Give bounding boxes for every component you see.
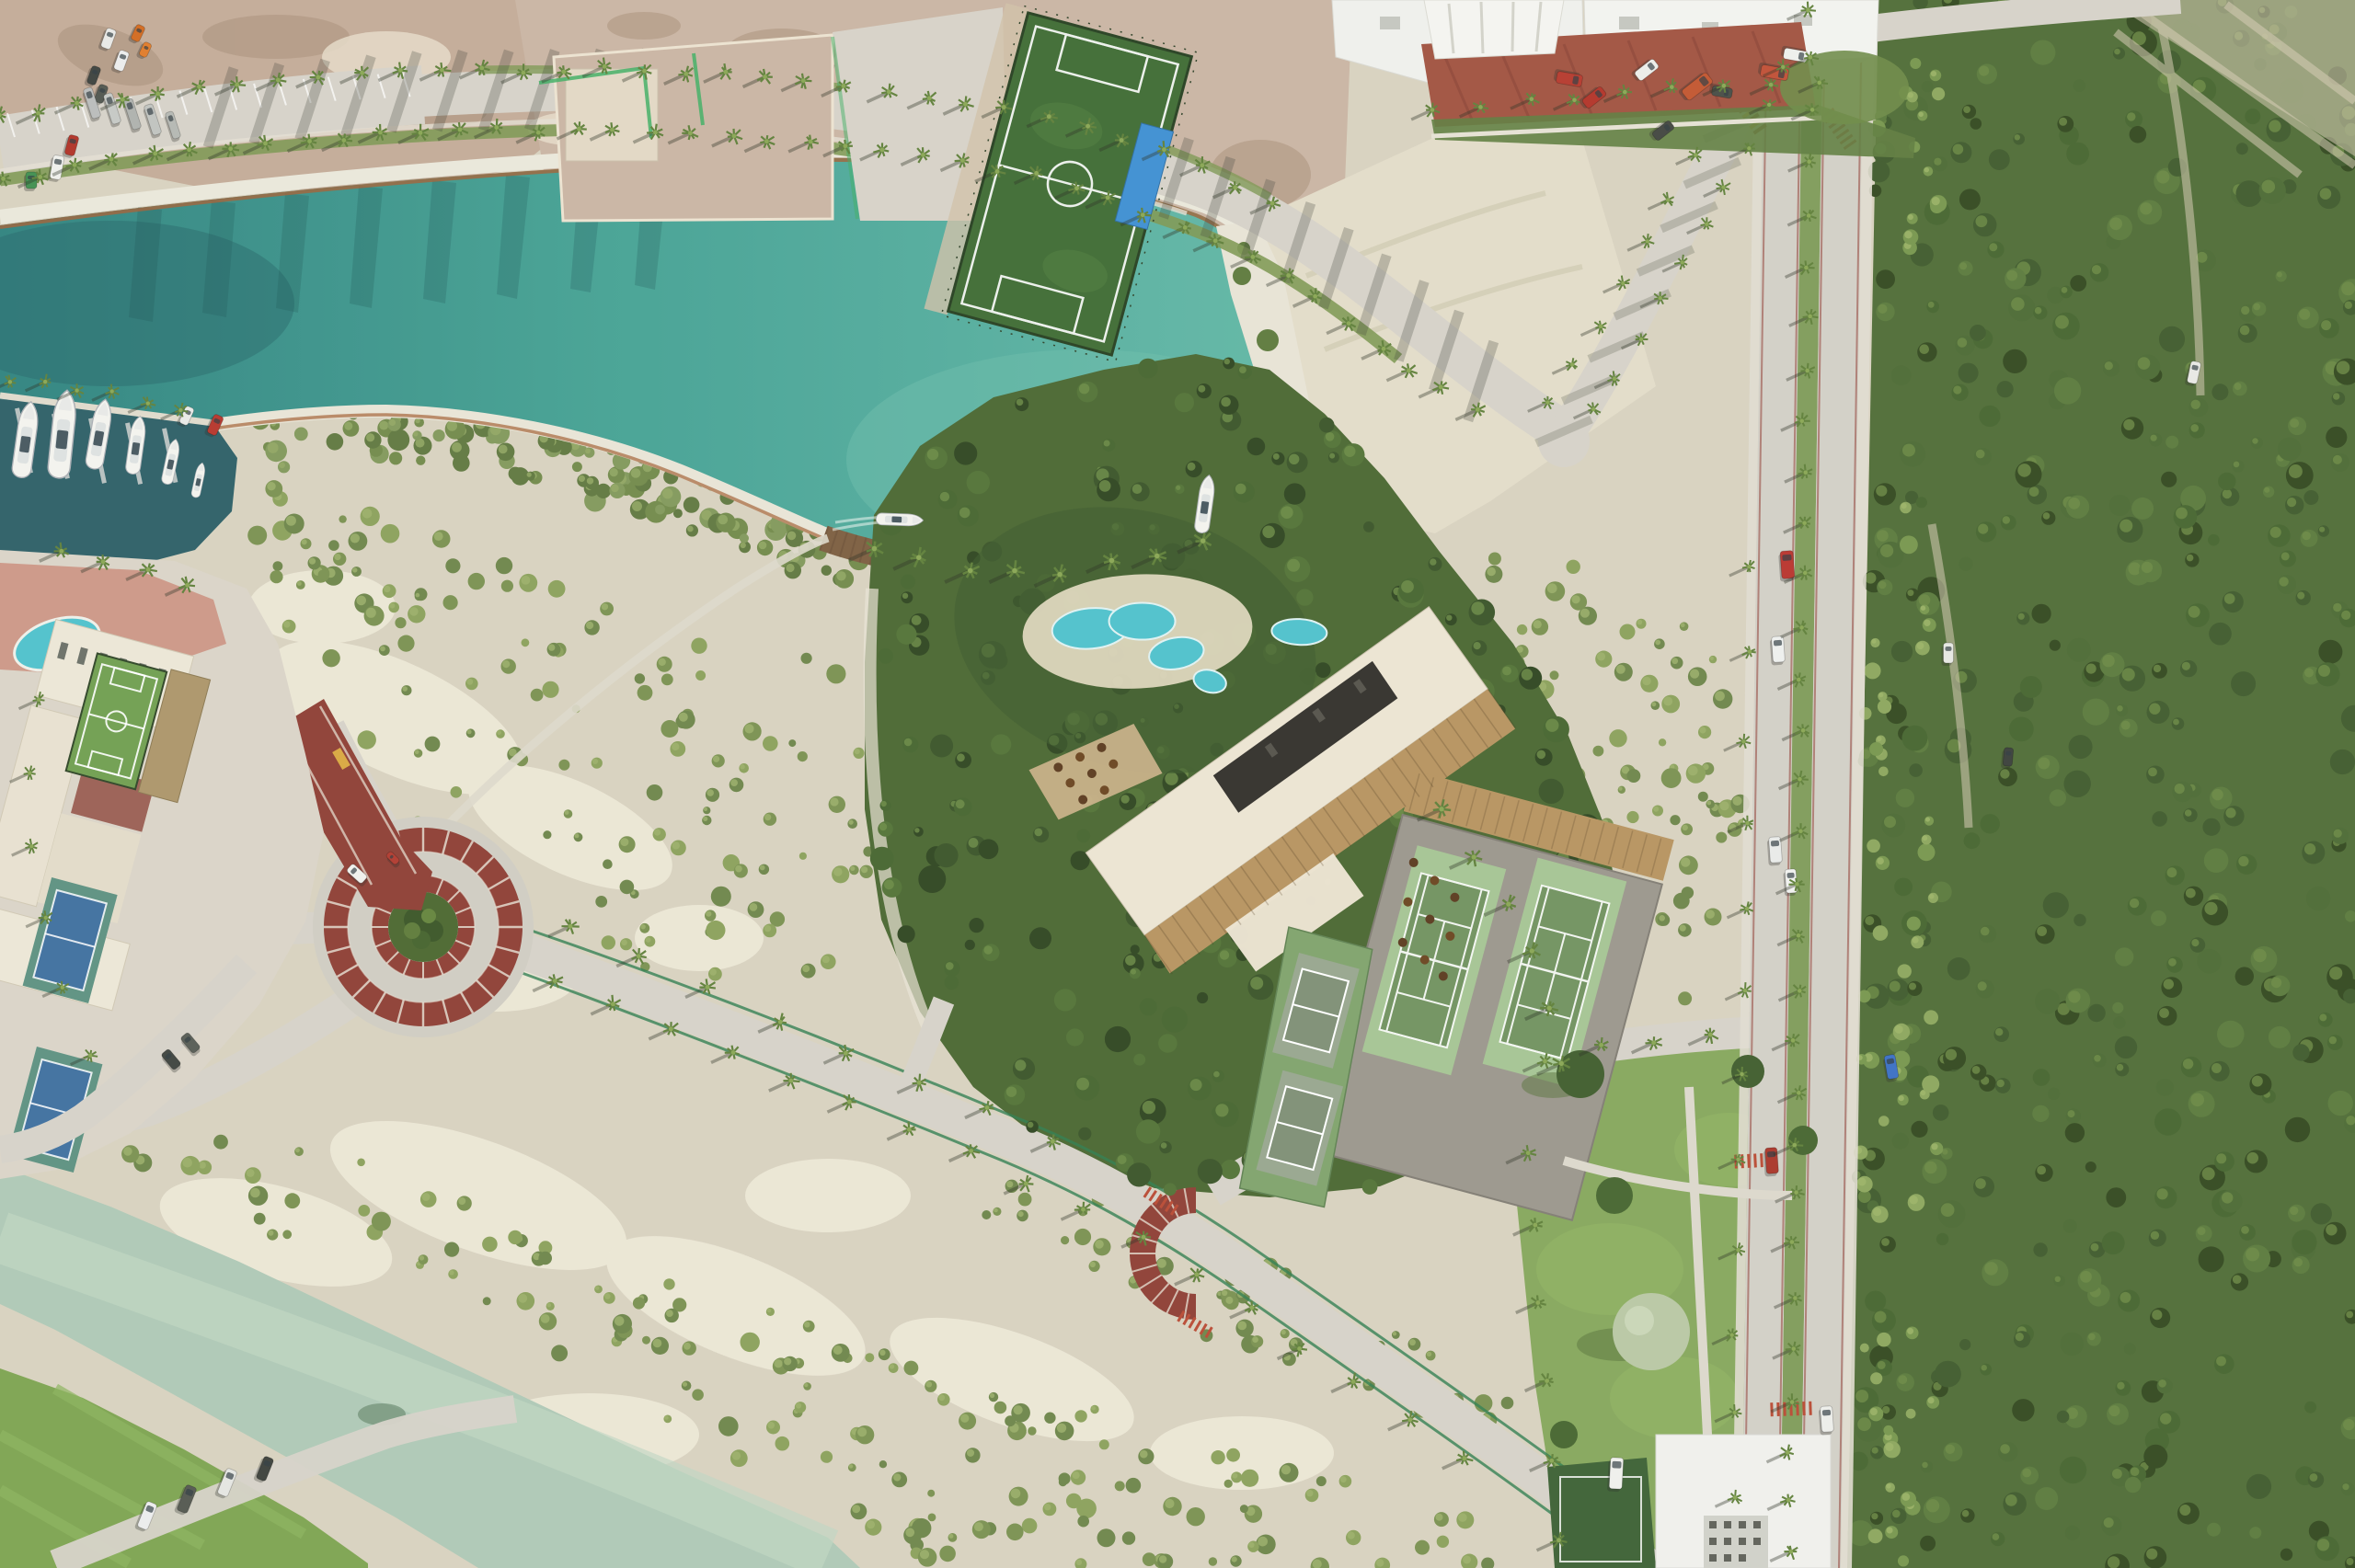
haze-overlay bbox=[0, 0, 2355, 1568]
aerial-photo bbox=[0, 0, 2355, 1568]
